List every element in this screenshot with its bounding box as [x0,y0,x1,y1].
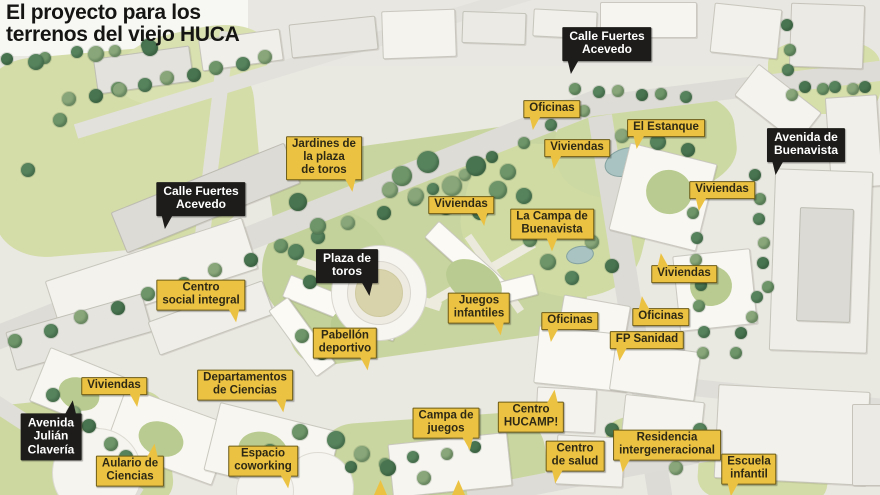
place-label-oficinas-north: Oficinas [523,100,580,118]
label-text: Jardines de la plaza de toros [292,138,356,176]
label-pointer [550,154,562,169]
label-text: Viviendas [695,183,749,195]
labels-layer: Calle Fuertes AcevedoAvenida de Buenavis… [0,0,880,495]
label-pointer [772,160,784,175]
label-text: El Estanque [633,121,699,133]
label-text: Oficinas [529,102,574,114]
label-text: Viviendas [657,267,711,279]
label-text: FP Sanidad [616,333,678,345]
place-label-campa-de-juegos: Campa de juegos [413,408,480,439]
label-pointer [529,115,541,130]
label-text: Residencia intergeneracional [619,432,715,457]
label-pointer [633,134,645,149]
label-text: Centro de salud [552,443,599,468]
place-label-viviendas-4: Viviendas [651,265,717,283]
label-text: La Campa de Buenavista [516,211,588,236]
label-pointer [546,236,558,251]
label-text: Calle Fuertes Acevedo [569,29,644,56]
place-label-el-estanque: El Estanque [627,119,705,137]
label-pointer [129,392,141,407]
place-label-aulario-de-ciencias: Aulario de Ciencias [96,456,164,487]
label-pointer [727,481,739,495]
place-label-oficinas-east: Oficinas [632,308,689,326]
label-pointer [619,457,631,472]
place-label-viviendas-1: Viviendas [544,139,610,157]
label-text: Aulario de Ciencias [102,458,158,483]
label-text: Juegos infantiles [454,295,504,320]
label-pointer [146,444,158,459]
label-text: Departamentos de Ciencias [203,372,287,397]
label-text: Calle Fuertes Acevedo [163,184,238,211]
infographic-title: El proyecto para los terrenos del viejo … [6,2,240,47]
label-pointer [275,397,287,412]
label-pointer [552,468,564,483]
place-label-espacio-coworking: Espacio coworking [228,446,298,477]
place-label-centro-hucamp: Centro HUCAMP! [498,402,564,433]
street-label-plaza-de-toros: Plaza de toros [316,249,378,283]
place-label-fp-sanidad: FP Sanidad [610,331,684,349]
label-pointer [359,355,371,370]
label-text: Oficinas [547,314,592,326]
label-text: Plaza de toros [323,251,371,278]
label-text: Avenida Julián Clavería [28,415,75,456]
place-label-residencia-intergeneracional: Residencia intergeneracional [613,430,721,461]
label-pointer [546,390,558,405]
label-pointer [492,320,504,335]
label-text: Viviendas [550,141,604,153]
place-label-escuela-infantil: Escuela infantil [721,454,776,485]
label-pointer [64,400,76,415]
label-pointer [361,281,373,296]
place-label-la-campa-de-buenavista: La Campa de Buenavista [510,209,594,240]
street-label-calle-fuertes-acevedo-north: Calle Fuertes Acevedo [562,27,651,61]
label-text: Campa de juegos [419,410,474,435]
label-text: Centro HUCAMP! [504,404,558,429]
label-text: Pabellón deportivo [319,330,371,355]
label-text: Espacio coworking [234,448,292,473]
label-text: Escuela infantil [727,456,770,481]
label-pointer [616,346,628,361]
place-label-centro-social-integral: Centro social integral [156,280,245,311]
label-pointer [280,473,292,488]
label-pointer [695,196,707,211]
street-label-avenida-de-buenavista: Avenida de Buenavista [767,128,845,162]
label-pointer [567,59,579,74]
infographic-canvas: Calle Fuertes AcevedoAvenida de Buenavis… [0,0,880,495]
place-label-viviendas-2: Viviendas [428,196,494,214]
place-label-juegos-infantiles: Juegos infantiles [448,293,510,324]
place-label-oficinas-center: Oficinas [541,312,598,330]
label-pointer [228,307,240,322]
label-pointer [344,177,356,192]
label-pointer [161,214,173,229]
place-label-departamentos-de-ciencias: Departamentos de Ciencias [197,370,293,401]
place-label-centro-de-salud: Centro de salud [546,441,605,472]
label-pointer [547,327,559,342]
label-text: Avenida de Buenavista [774,130,838,157]
label-pointer [461,435,473,450]
label-pointer [638,296,650,311]
place-label-viviendas-3: Viviendas [689,181,755,199]
street-label-calle-fuertes-acevedo-west: Calle Fuertes Acevedo [156,182,245,216]
street-label-avenida-julian-claveria: Avenida Julián Clavería [21,413,82,460]
label-pointer [476,211,488,226]
place-label-jardines-de-la-plaza-de-toros: Jardines de la plaza de toros [286,136,362,180]
label-text: Oficinas [638,310,683,322]
place-label-pabellon-deportivo: Pabellón deportivo [313,328,377,359]
label-pointer [657,253,669,268]
place-label-viviendas-5: Viviendas [81,377,147,395]
label-text: Centro social integral [162,282,239,307]
label-text: Viviendas [87,379,141,391]
label-text: Viviendas [434,198,488,210]
